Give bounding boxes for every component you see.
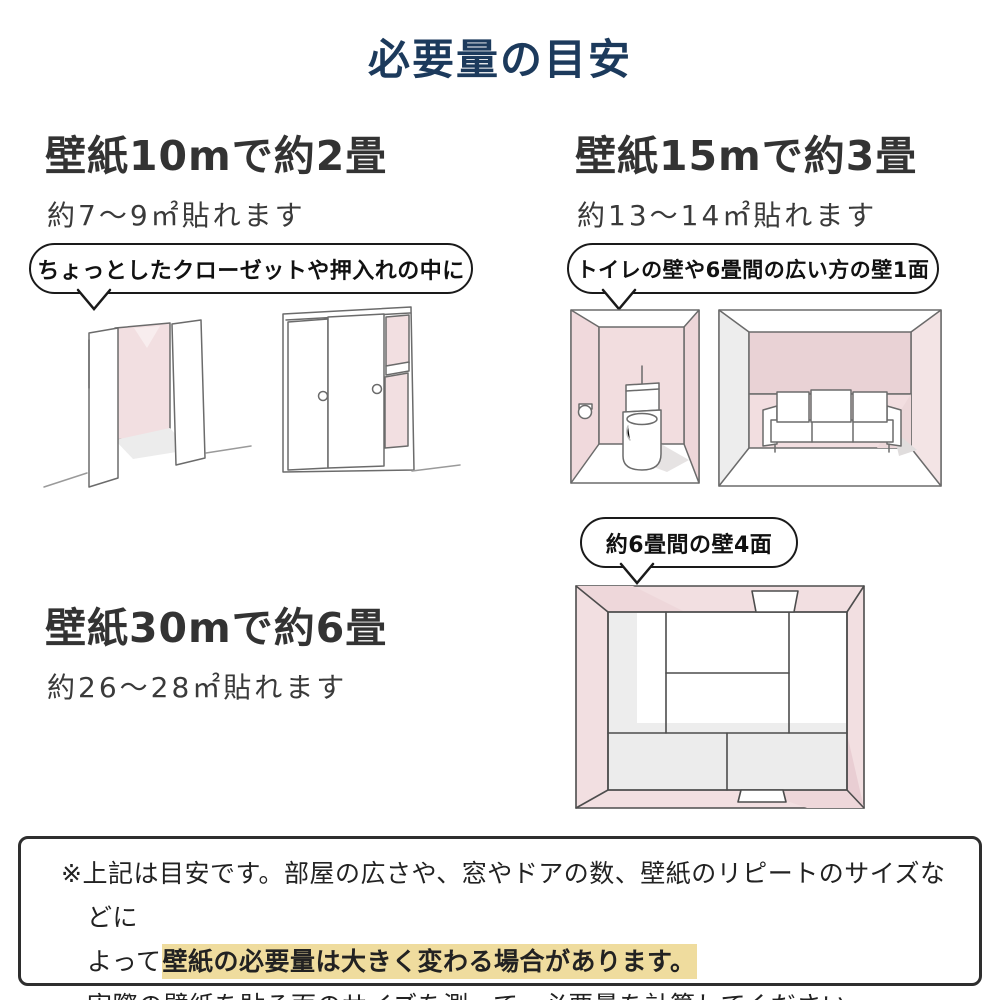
section-15m-subtext: 約13〜14㎡貼れます xyxy=(577,194,917,234)
section-30m-subtext: 約26〜28㎡貼れます xyxy=(47,666,387,706)
section-15m-heading: 壁紙15mで約3畳 xyxy=(575,122,917,182)
note-box: ※上記は目安です。部屋の広さや、窓やドアの数、壁紙のリピートのサイズなどに よっ… xyxy=(18,836,982,986)
bubble-closet-usage-label: ちょっとしたクローゼットや押入れの中に xyxy=(37,253,465,285)
note-line3: 実際の壁紙を貼る面のサイズを測って、必要量を計算してください。 xyxy=(87,991,873,1000)
section-10m-subtext: 約7〜9㎡貼れます xyxy=(47,194,387,234)
toilet-room-illustration xyxy=(571,310,699,483)
section-30m-heading: 壁紙30mで約6畳 xyxy=(45,594,387,654)
bubble-toilet-usage: トイレの壁や6畳間の広い方の壁1面 xyxy=(567,243,939,294)
note-line1: ※上記は目安です。部屋の広さや、窓やドアの数、壁紙のリピートのサイズなどに xyxy=(61,859,945,932)
page-title: 必要量の目安 xyxy=(0,26,1000,87)
closet-illustrations xyxy=(40,300,480,520)
closet-hinged-doors-illustration xyxy=(44,320,251,487)
closet-sliding-doors-illustration xyxy=(283,307,460,472)
note-text: ※上記は目安です。部屋の広さや、窓やドアの数、壁紙のリピートのサイズなどに よっ… xyxy=(21,839,979,1000)
note-line2-highlight: 壁紙の必要量は大きく変わる場合があります。 xyxy=(162,944,697,979)
bubble-six-mat-room-label: 約6畳間の壁4面 xyxy=(606,527,773,559)
six-mat-room-wall-illustration xyxy=(719,310,941,486)
six-mat-room-top-view-illustration xyxy=(575,584,867,810)
room-illustrations xyxy=(555,298,975,513)
note-line2-prefix: よって xyxy=(87,947,162,976)
bubble-toilet-usage-label: トイレの壁や6畳間の広い方の壁1面 xyxy=(577,254,930,284)
section-30m: 壁紙30mで約6畳 約26〜28㎡貼れます xyxy=(45,594,387,706)
bubble-closet-usage: ちょっとしたクローゼットや押入れの中に xyxy=(29,243,473,294)
section-10m-heading: 壁紙10mで約2畳 xyxy=(45,122,387,182)
bubble-tail-icon xyxy=(620,564,654,585)
section-10m: 壁紙10mで約2畳 約7〜9㎡貼れます xyxy=(45,122,387,234)
bubble-six-mat-room: 約6畳間の壁4面 xyxy=(580,517,798,568)
wallpaper-amount-guide: 必要量の目安 壁紙10mで約2畳 約7〜9㎡貼れます 壁紙15mで約3畳 約13… xyxy=(0,0,1000,1000)
section-15m: 壁紙15mで約3畳 約13〜14㎡貼れます xyxy=(575,122,917,234)
